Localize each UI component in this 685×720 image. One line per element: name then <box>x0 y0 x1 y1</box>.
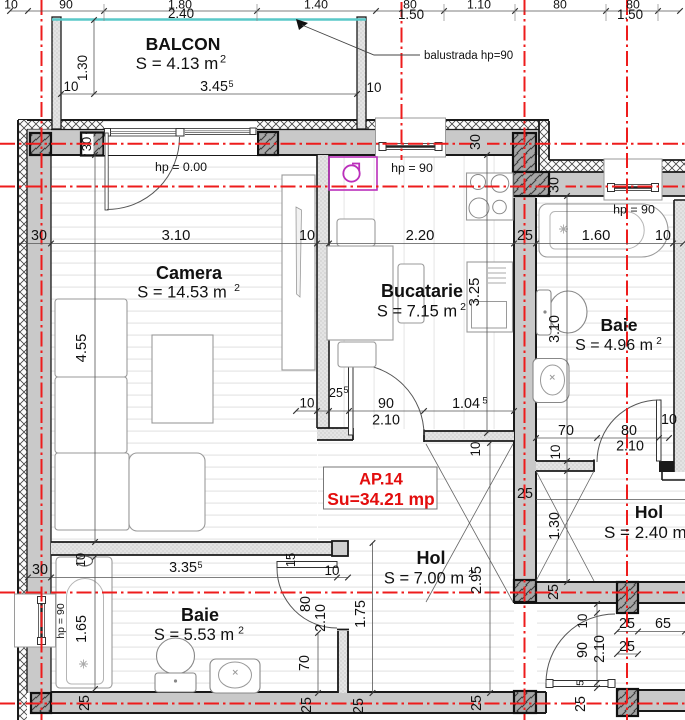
svg-text:25: 25 <box>517 228 533 244</box>
svg-text:S = 7.15 m: S = 7.15 m <box>377 303 457 321</box>
svg-text:1.04: 1.04 <box>452 396 480 412</box>
svg-text:1.30: 1.30 <box>547 512 563 540</box>
svg-text:2.10: 2.10 <box>313 604 329 632</box>
svg-text:30: 30 <box>547 177 563 193</box>
svg-text:2.40: 2.40 <box>168 6 194 21</box>
svg-text:1.50: 1.50 <box>617 7 643 22</box>
svg-text:hp = 90: hp = 90 <box>55 603 67 638</box>
svg-text:5: 5 <box>482 396 487 407</box>
svg-text:10: 10 <box>575 614 590 629</box>
svg-text:1.30: 1.30 <box>75 55 90 81</box>
svg-text:Camera: Camera <box>156 263 223 283</box>
svg-text:90: 90 <box>59 0 73 12</box>
svg-text:S = 4.13 m: S = 4.13 m <box>136 54 219 73</box>
svg-text:2: 2 <box>468 568 474 580</box>
svg-text:25: 25 <box>546 584 562 600</box>
svg-text:10: 10 <box>4 0 18 12</box>
svg-text:2.20: 2.20 <box>406 228 435 244</box>
svg-text:25: 25 <box>517 486 533 502</box>
svg-text:3.35: 3.35 <box>169 560 197 576</box>
svg-text:1.40: 1.40 <box>304 0 328 12</box>
svg-text:5: 5 <box>197 560 202 570</box>
svg-text:80: 80 <box>298 596 314 612</box>
svg-text:10: 10 <box>655 228 671 244</box>
svg-text:10: 10 <box>299 228 315 244</box>
svg-text:1.65: 1.65 <box>74 615 90 643</box>
svg-text:80: 80 <box>621 423 637 439</box>
svg-text:5: 5 <box>575 680 587 686</box>
svg-text:80: 80 <box>553 0 567 12</box>
svg-text:70: 70 <box>558 423 574 439</box>
svg-text:3.25: 3.25 <box>467 278 483 307</box>
svg-text:S = 2.40 m: S = 2.40 m <box>604 523 685 542</box>
svg-text:10: 10 <box>548 445 563 460</box>
svg-text:25: 25 <box>469 695 485 711</box>
svg-text:25: 25 <box>329 386 343 400</box>
svg-text:5: 5 <box>343 385 348 395</box>
svg-text:S = 14.53 m: S = 14.53 m <box>137 284 226 302</box>
svg-text:10: 10 <box>468 442 483 457</box>
svg-text:S = 4.96 m: S = 4.96 m <box>575 337 653 354</box>
svg-text:3.10: 3.10 <box>162 228 191 244</box>
svg-text:Su=34.21 mp: Su=34.21 mp <box>327 489 435 509</box>
svg-text:5: 5 <box>228 79 233 89</box>
svg-text:25: 25 <box>573 696 589 712</box>
svg-text:2: 2 <box>656 336 662 347</box>
svg-text:25: 25 <box>299 697 315 713</box>
svg-text:70: 70 <box>297 655 313 671</box>
svg-text:1.60: 1.60 <box>582 228 611 244</box>
svg-text:15: 15 <box>283 553 298 567</box>
svg-text:Baie: Baie <box>601 315 638 335</box>
svg-text:3.10: 3.10 <box>547 315 563 343</box>
svg-text:Baie: Baie <box>181 605 219 625</box>
svg-text:1.50: 1.50 <box>398 7 424 22</box>
svg-text:30: 30 <box>32 562 48 578</box>
svg-text:10: 10 <box>73 553 88 567</box>
svg-text:10: 10 <box>661 412 677 428</box>
svg-text:10: 10 <box>367 80 382 95</box>
svg-text:2: 2 <box>234 282 240 294</box>
svg-text:30: 30 <box>468 134 484 150</box>
svg-text:2.10: 2.10 <box>616 439 644 455</box>
svg-text:BALCON: BALCON <box>146 34 221 54</box>
svg-text:25: 25 <box>619 639 635 655</box>
svg-text:25: 25 <box>619 616 635 632</box>
svg-text:25: 25 <box>77 695 93 711</box>
svg-text:AP.14: AP.14 <box>359 471 404 489</box>
svg-text:hp = 90: hp = 90 <box>613 203 655 217</box>
svg-text:hp = 90: hp = 90 <box>391 161 433 175</box>
svg-text:Hol: Hol <box>635 502 663 522</box>
svg-text:90: 90 <box>575 642 591 658</box>
svg-text:1.75: 1.75 <box>353 600 369 628</box>
svg-text:balustrada hp=90: balustrada hp=90 <box>424 50 513 62</box>
svg-text:2.10: 2.10 <box>372 413 400 429</box>
svg-text:2.10: 2.10 <box>592 635 608 663</box>
svg-text:90: 90 <box>378 396 394 412</box>
svg-text:2: 2 <box>220 54 226 66</box>
svg-text:Hol: Hol <box>417 548 446 568</box>
svg-text:30: 30 <box>31 228 47 244</box>
svg-text:S = 5.53 m: S = 5.53 m <box>154 626 234 644</box>
svg-text:Bucatarie: Bucatarie <box>381 281 463 301</box>
svg-text:10: 10 <box>325 563 340 578</box>
svg-text:2: 2 <box>460 301 466 313</box>
svg-text:1.10: 1.10 <box>467 0 491 12</box>
svg-text:4.55: 4.55 <box>74 334 90 363</box>
svg-text:hp = 0.00: hp = 0.00 <box>155 160 207 174</box>
svg-text:10: 10 <box>300 396 315 411</box>
svg-text:25: 25 <box>351 698 367 714</box>
svg-text:3.45: 3.45 <box>200 79 228 95</box>
svg-text:2: 2 <box>238 625 244 637</box>
svg-text:65: 65 <box>655 616 671 632</box>
svg-text:S = 7.00 m: S = 7.00 m <box>384 570 464 588</box>
